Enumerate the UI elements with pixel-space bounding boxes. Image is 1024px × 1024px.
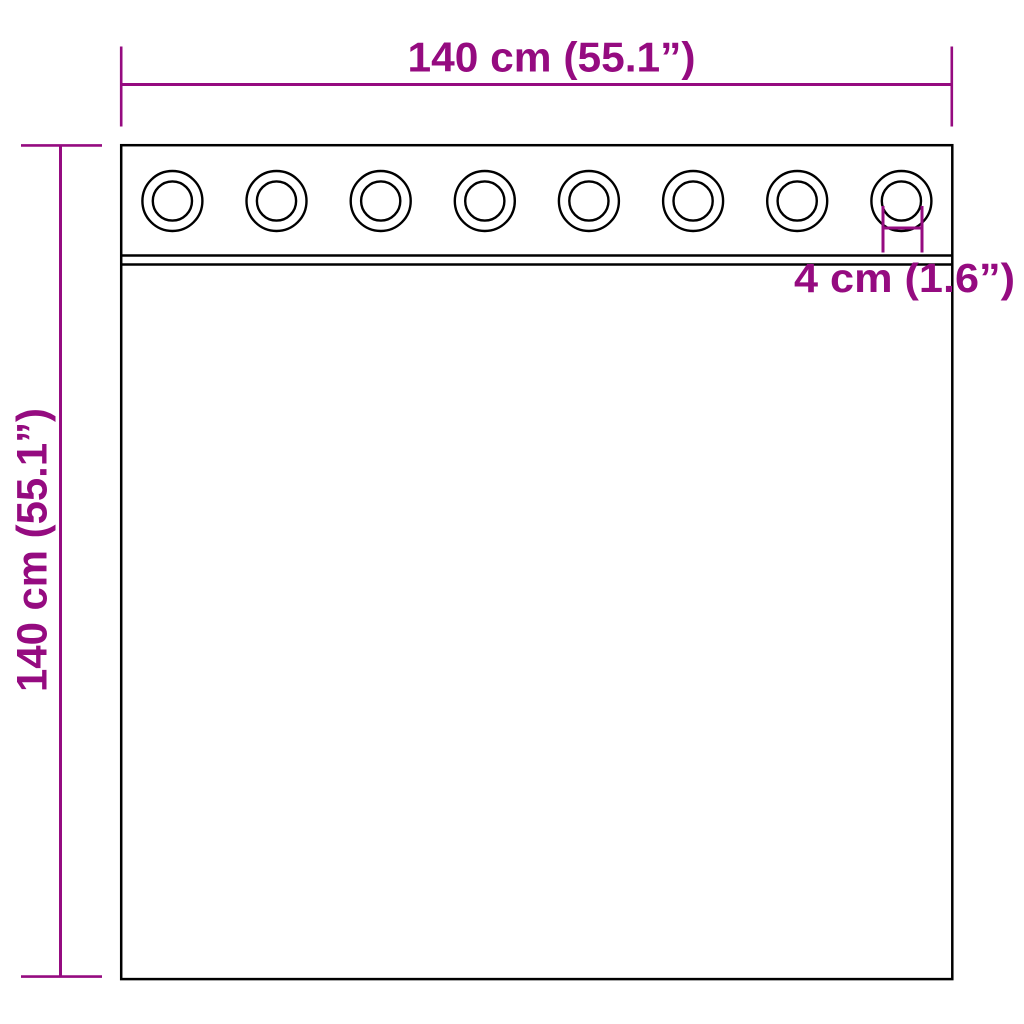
svg-text:140 cm (55.1”): 140 cm (55.1”) xyxy=(9,408,57,692)
svg-text:4 cm (1.6”): 4 cm (1.6”) xyxy=(794,255,1015,301)
svg-text:140 cm (55.1”): 140 cm (55.1”) xyxy=(408,34,696,81)
